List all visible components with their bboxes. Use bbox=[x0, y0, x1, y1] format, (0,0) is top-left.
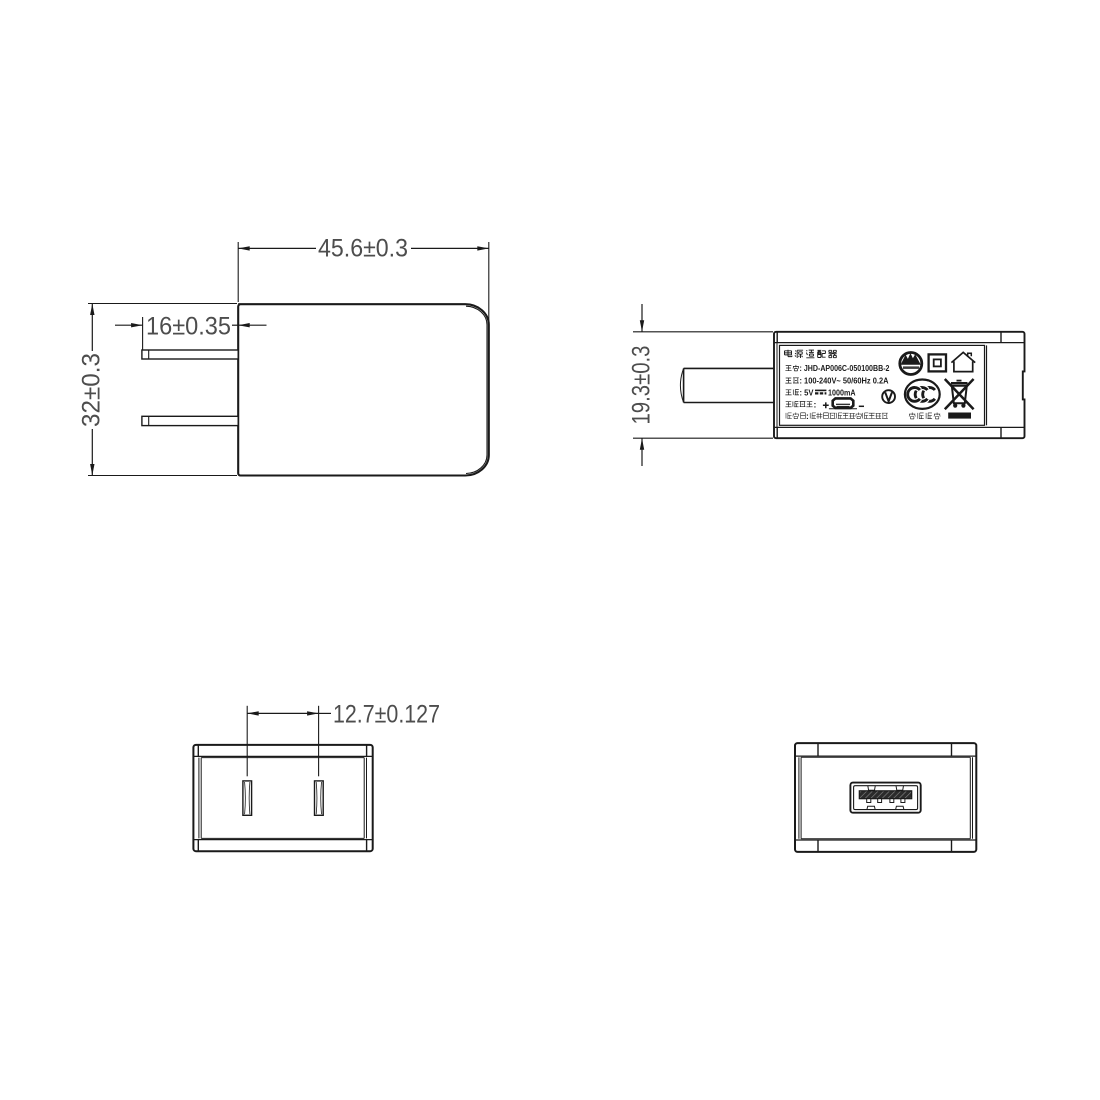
svg-text:16±0.35: 16±0.35 bbox=[146, 313, 231, 341]
svg-text:12.7±0.127: 12.7±0.127 bbox=[333, 701, 440, 729]
svg-text:45.6±0.3: 45.6±0.3 bbox=[318, 235, 408, 263]
svg-text::: : bbox=[806, 411, 809, 421]
svg-text::: : bbox=[814, 399, 817, 409]
svg-text:: 5V: : 5V bbox=[800, 387, 814, 397]
svg-text:: 100-240V~ 50/60Hz 0.2A: : 100-240V~ 50/60Hz 0.2A bbox=[800, 376, 889, 386]
svg-text:32±0.3: 32±0.3 bbox=[78, 353, 106, 427]
svg-text:: JHD-AP006C-050100BB-2: : JHD-AP006C-050100BB-2 bbox=[800, 363, 890, 373]
svg-text:1000mA: 1000mA bbox=[828, 387, 856, 397]
svg-text:19.3±0.3: 19.3±0.3 bbox=[628, 346, 656, 425]
